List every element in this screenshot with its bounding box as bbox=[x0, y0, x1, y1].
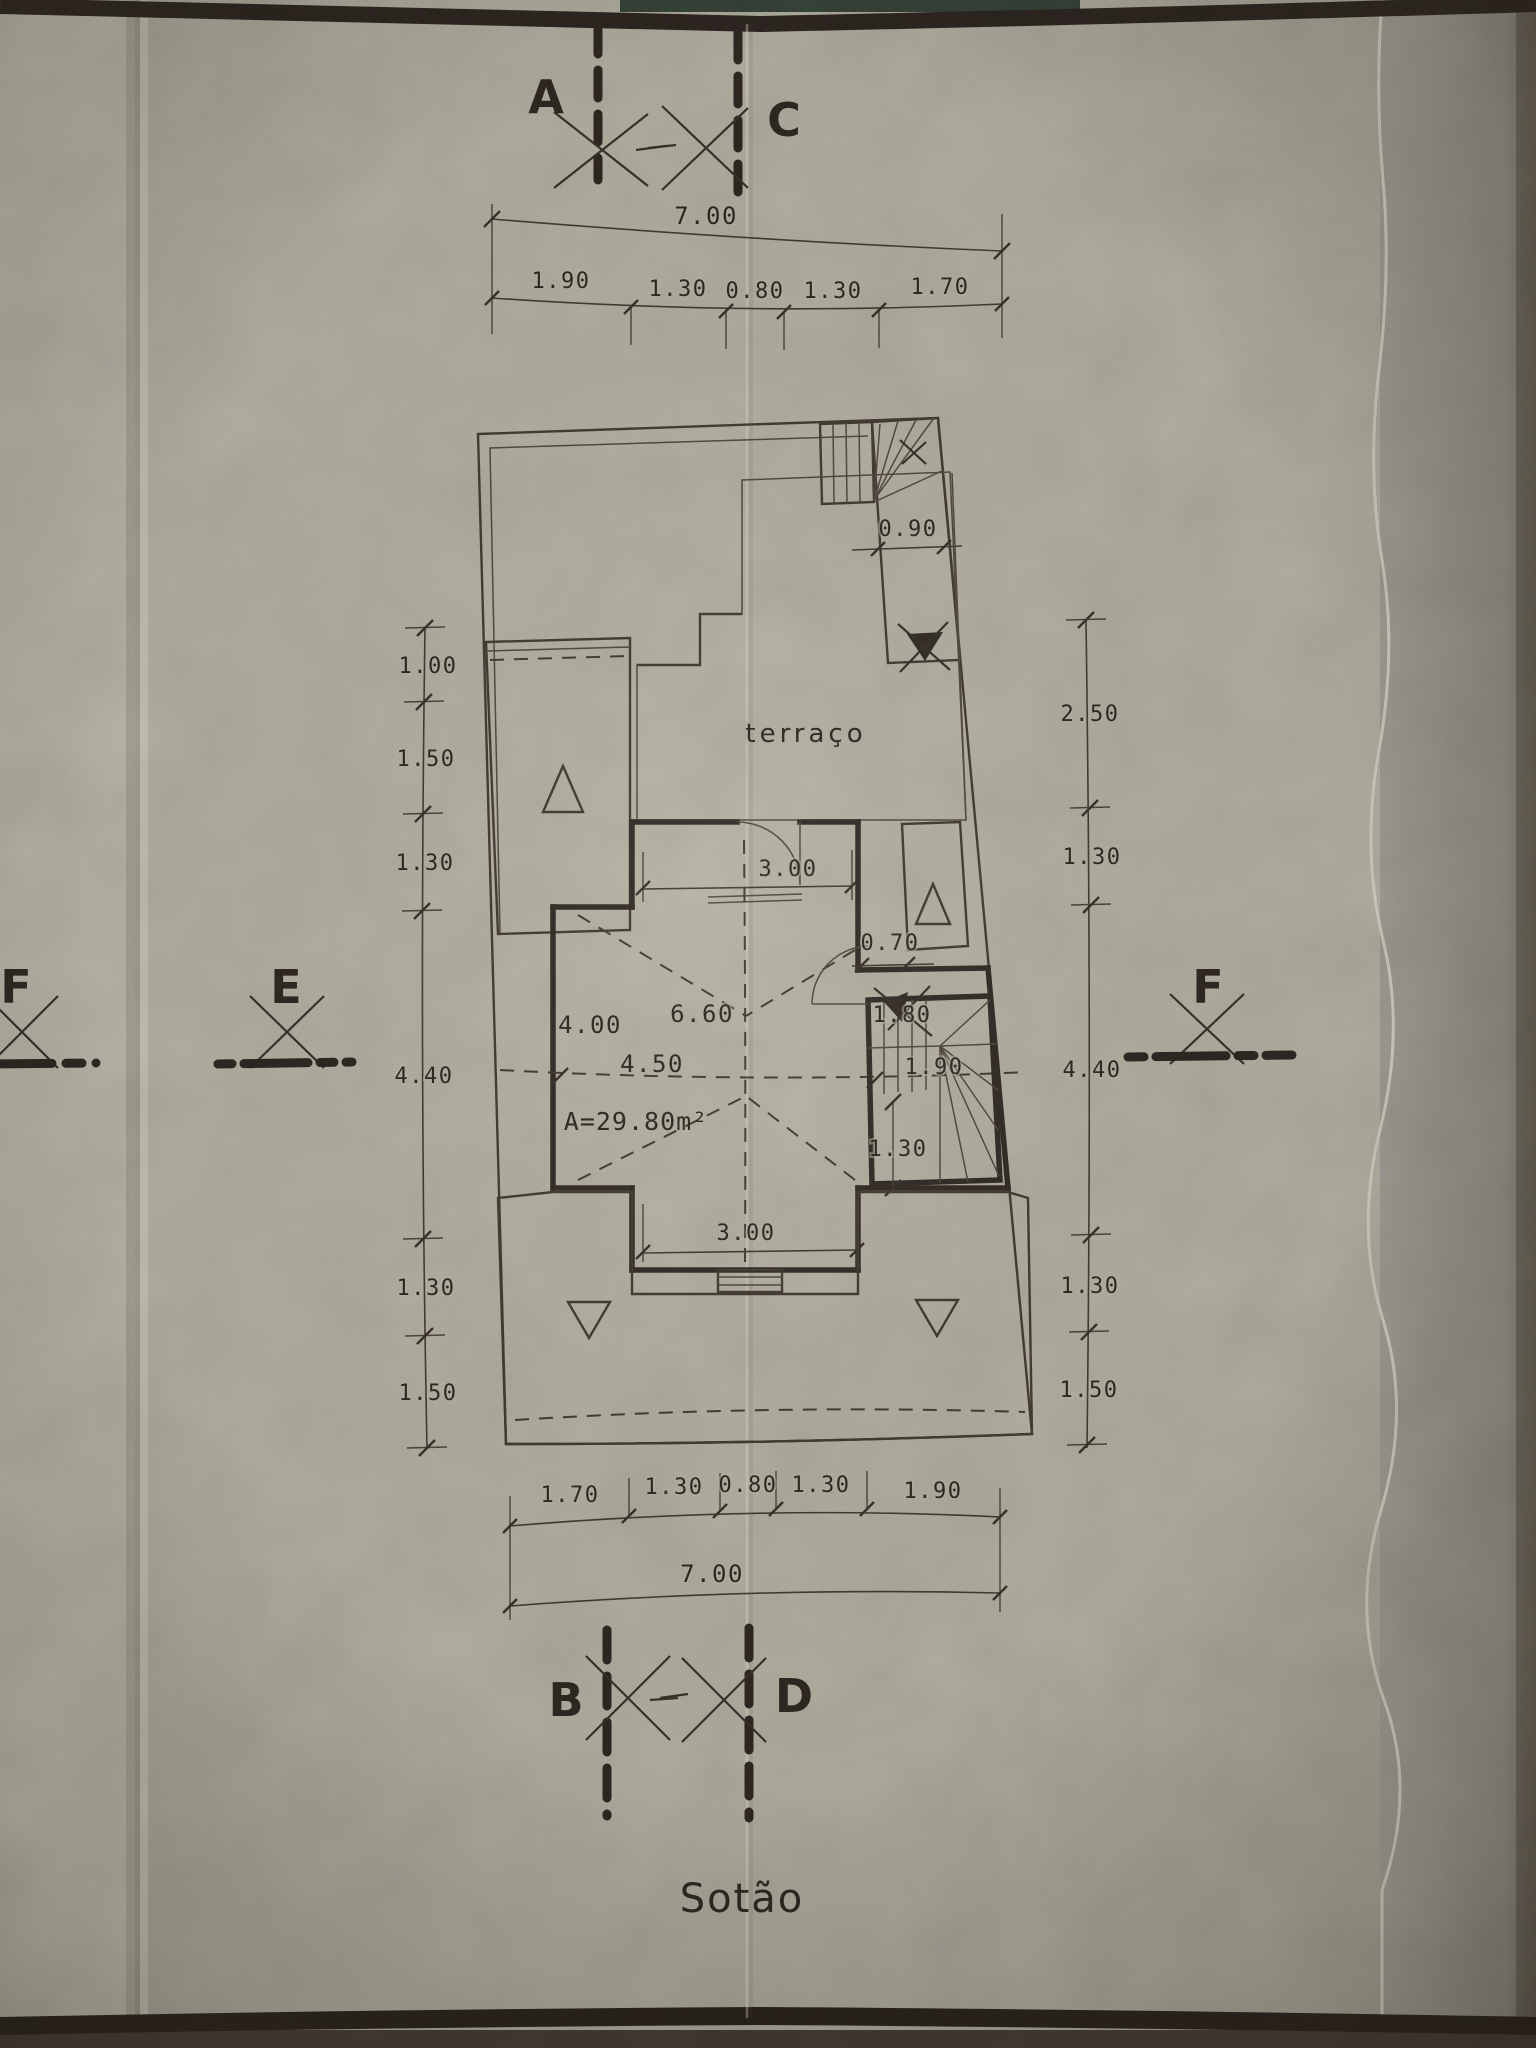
photographed-floor-plan: A C 7.00 1.90 1.30 0.80 1.30 1.70 bbox=[0, 0, 1536, 2048]
photo-overlays bbox=[0, 0, 1536, 2048]
drawing-canvas: A C 7.00 1.90 1.30 0.80 1.30 1.70 bbox=[0, 0, 1536, 2048]
photo-grain bbox=[0, 0, 1536, 2048]
